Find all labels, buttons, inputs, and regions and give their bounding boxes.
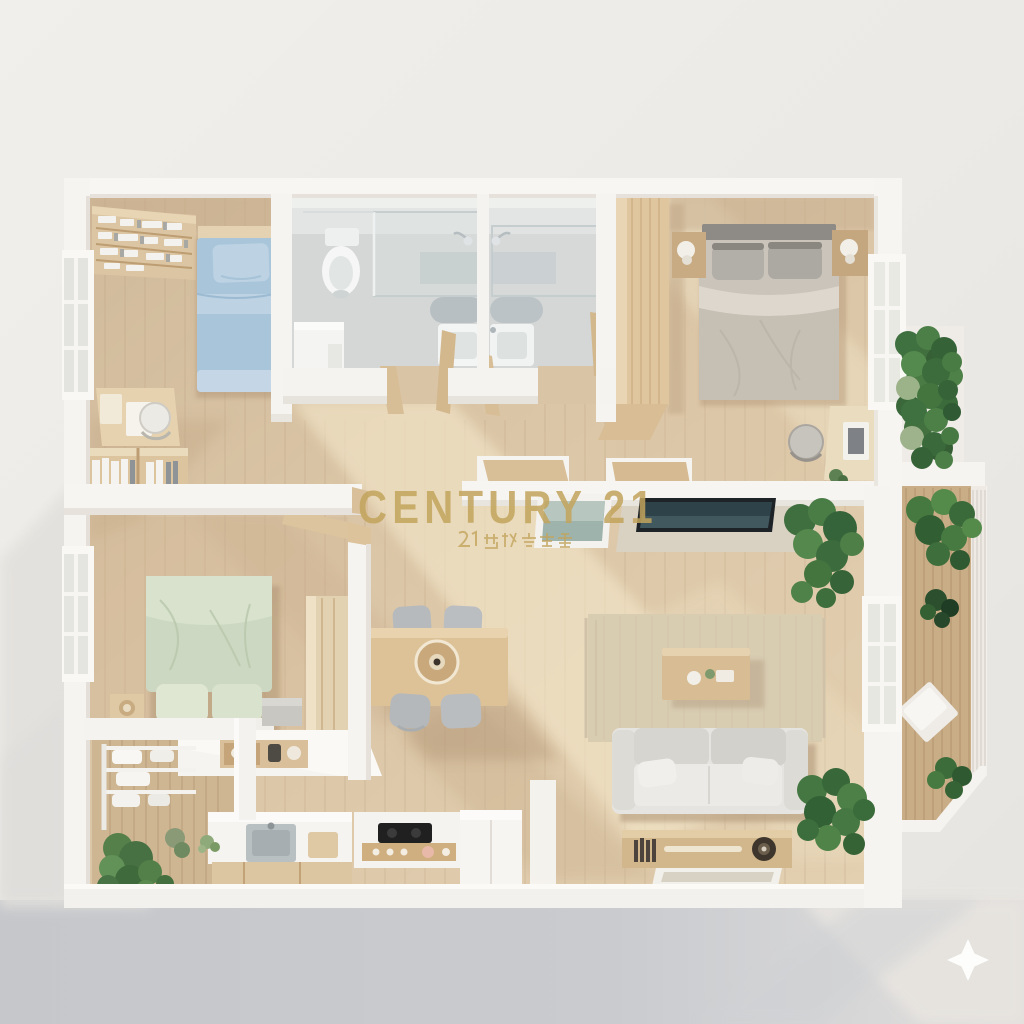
svg-text:CENTURY 21: CENTURY 21 xyxy=(358,481,658,533)
